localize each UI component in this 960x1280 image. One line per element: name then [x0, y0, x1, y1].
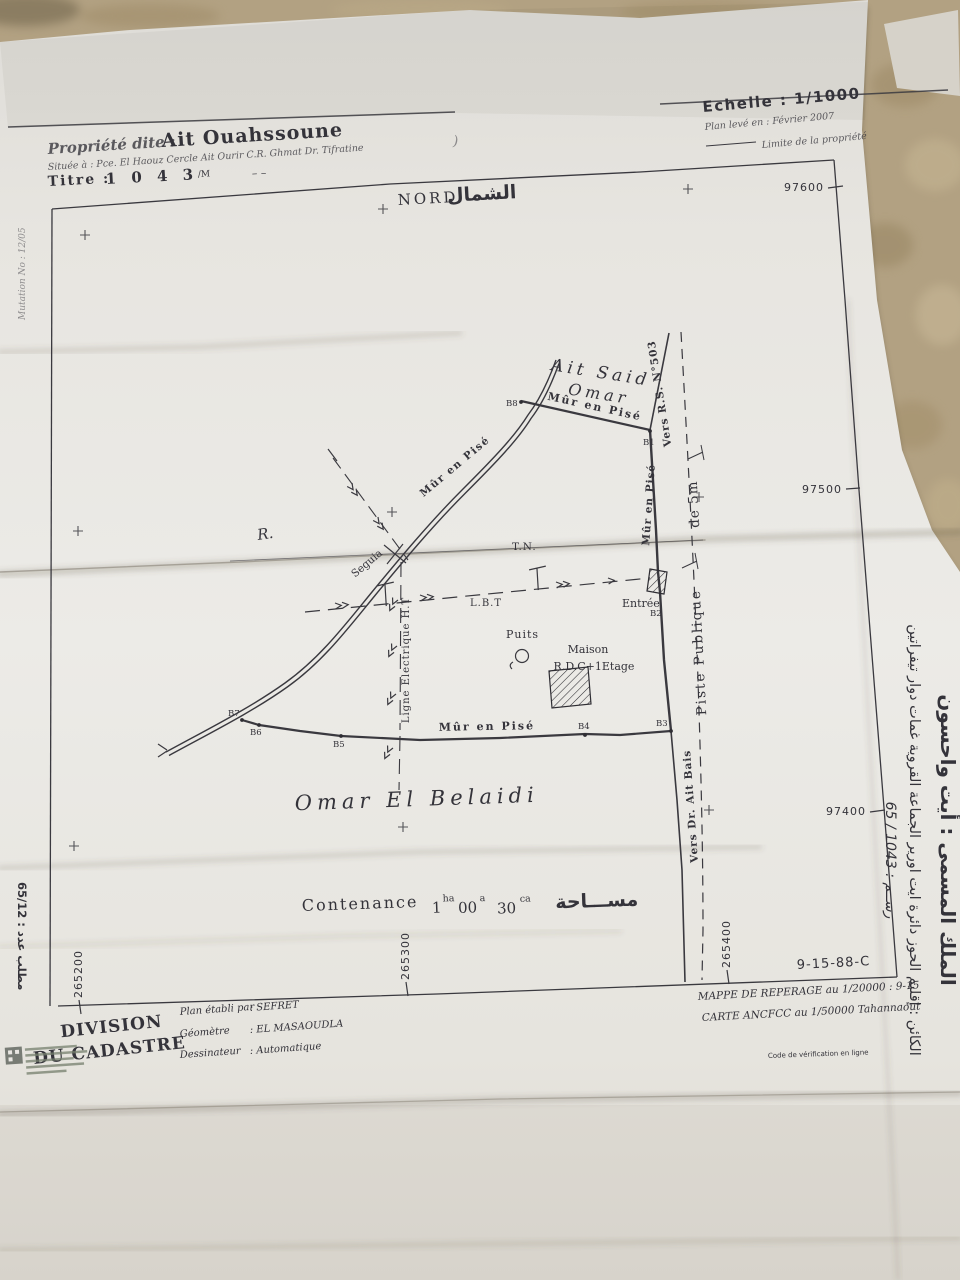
house-label-line2: R.D.C+1Etage	[554, 660, 635, 673]
contenance-label: Contenance	[301, 892, 418, 915]
lbt-label: L.B.T	[470, 598, 502, 609]
piste-width-label: de 5m	[685, 480, 703, 528]
house-label-line1: Maison	[568, 643, 609, 656]
right-margin-arabic-line3: رســم : 1043 / 65	[882, 802, 898, 919]
x-coordinate-265400: 265400	[720, 920, 733, 968]
contenance-ha-value: 1	[432, 899, 442, 917]
margin-note-mutation: Mutation No : 12/05	[18, 227, 28, 321]
contenance-ha-unit: ha	[443, 893, 455, 904]
house-hatch	[549, 667, 591, 708]
river-label: R.	[255, 524, 274, 544]
point-b4: B4	[578, 722, 590, 732]
x-coordinate-265200: 265200	[72, 950, 85, 998]
point-b2: B2	[650, 609, 662, 619]
margin-note-requisition: مطلب عدد : 65/12	[15, 882, 29, 990]
contenance-ca-unit: ca	[520, 893, 532, 904]
electric-line-label: Ligne Electrique H.T	[401, 597, 412, 723]
contenance-a-unit: a	[480, 893, 486, 904]
titre-dashes: – –	[251, 166, 267, 180]
wall-bottom-label: Mûr en Pisé	[439, 719, 535, 734]
contenance-arabic: مســـاحة	[555, 889, 639, 914]
cadastral-plan-svg: Propriété dite : Ait Ouahssoune Située à…	[0, 0, 960, 1280]
titre-label: Titre :	[47, 171, 110, 190]
point-b7: B7	[228, 709, 240, 719]
entrance-hatch	[647, 569, 667, 594]
point-b5: B5	[333, 740, 345, 750]
point-b8: B8	[506, 399, 518, 409]
well-label: Puits	[506, 628, 539, 641]
y-coordinate-97400: 97400	[826, 805, 866, 818]
x-coordinate-265300: 265300	[399, 932, 412, 980]
tn-label: T.N.	[512, 541, 537, 553]
entrance-label: Entrée	[622, 597, 660, 610]
north-label-arabic: الشمال	[446, 181, 516, 207]
y-coordinate-97500: 97500	[802, 483, 842, 496]
titre-suffix: /M	[198, 169, 211, 180]
photo-of-cadastral-plan: Propriété dite : Ait Ouahssoune Située à…	[0, 0, 960, 1280]
point-b6: B6	[250, 728, 262, 738]
point-b1: B1	[643, 438, 655, 448]
right-margin-arabic-line2: الكائن : إقليم الحوز دائرة ايت اورير الج…	[906, 624, 922, 1055]
right-margin-arabic-line1: الملك المسمى : أيت واحسون	[936, 694, 960, 985]
contenance-ca-value: 30	[497, 899, 517, 918]
point-b3: B3	[656, 719, 668, 729]
contenance-a-value: 00	[458, 898, 478, 917]
y-coordinate-97600: 97600	[784, 181, 824, 194]
